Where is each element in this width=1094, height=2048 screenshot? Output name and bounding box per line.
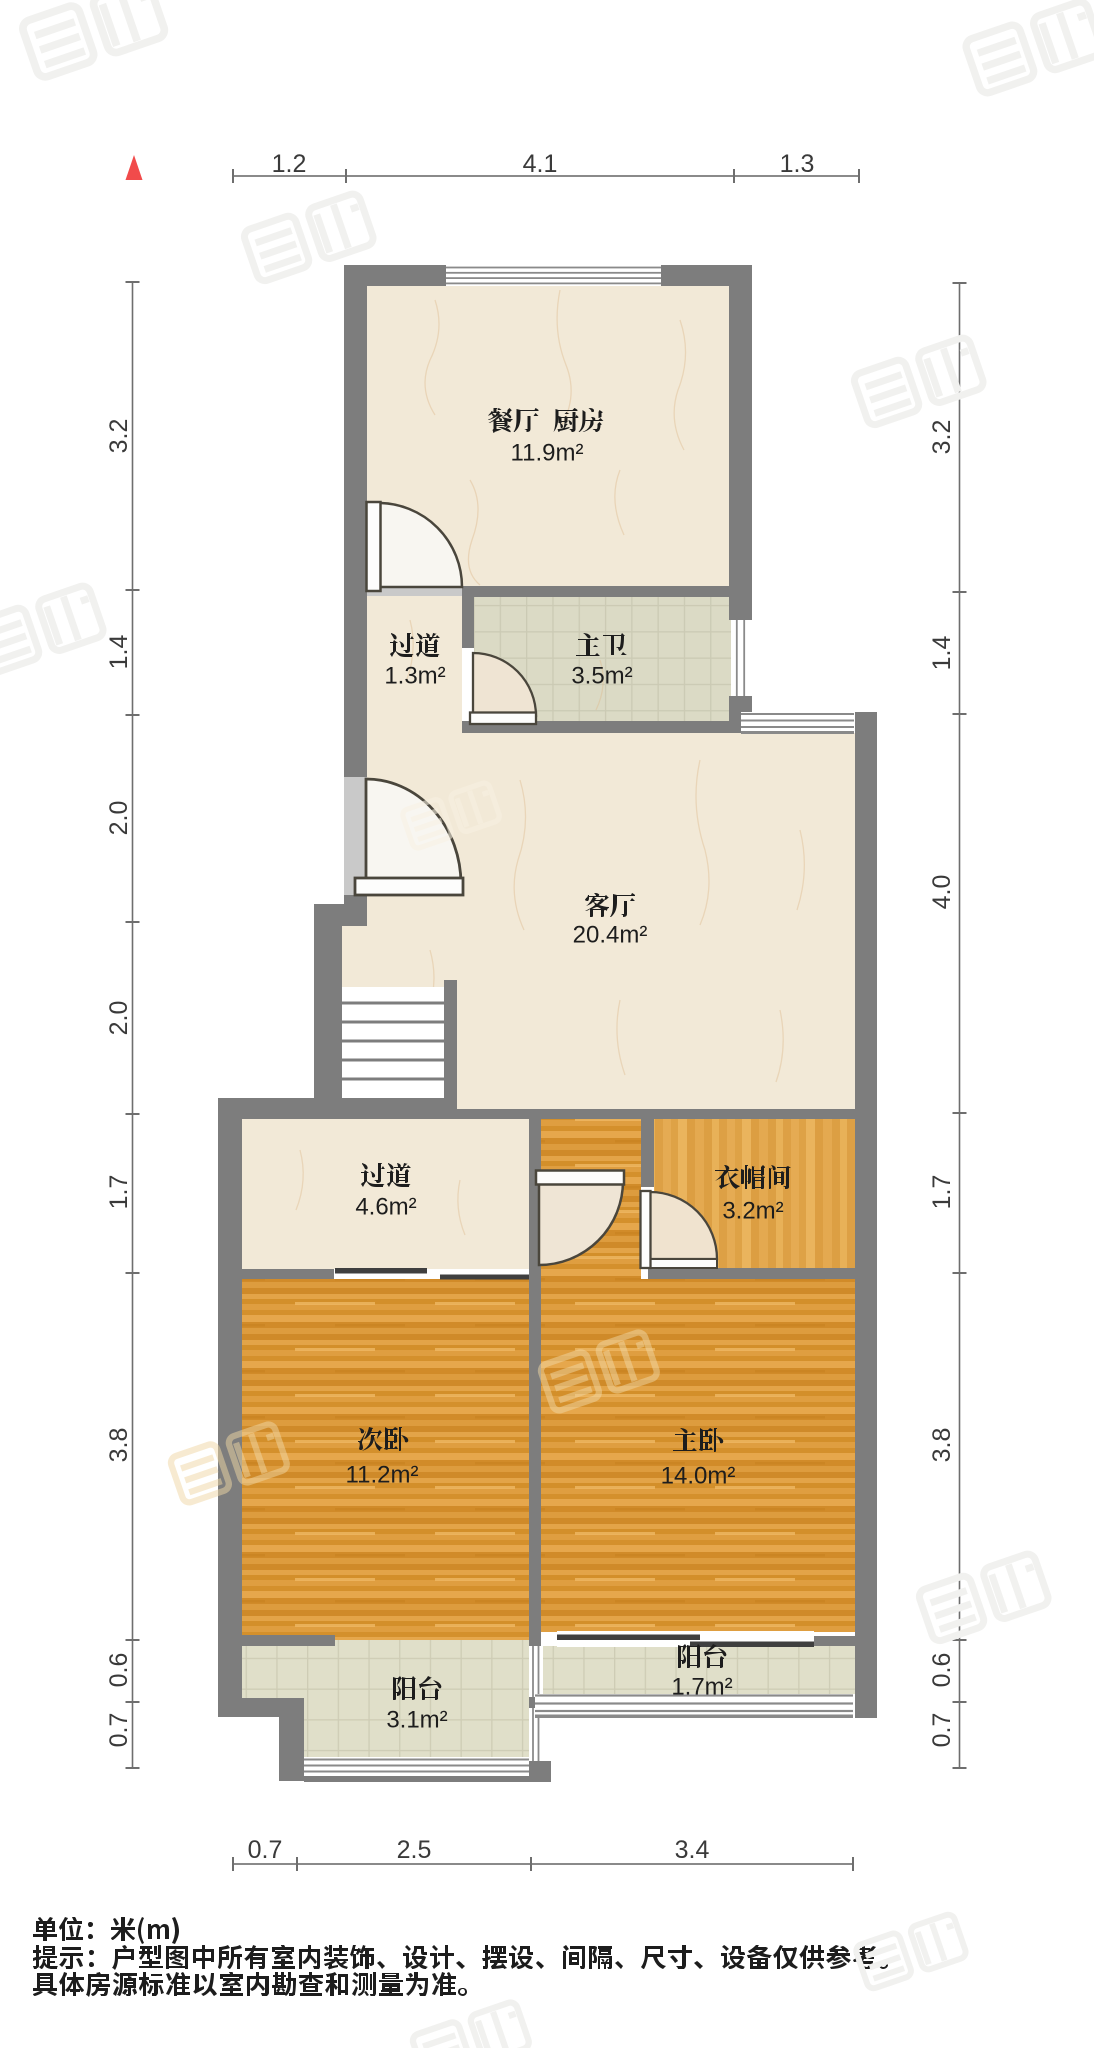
svg-text:0.7: 0.7: [248, 1836, 283, 1864]
svg-text:0.6: 0.6: [105, 1653, 133, 1688]
svg-text:3.2: 3.2: [928, 420, 956, 455]
svg-text:1.2: 1.2: [272, 150, 307, 178]
svg-text:1.4: 1.4: [928, 636, 956, 671]
svg-text:1.3m²: 1.3m²: [384, 663, 445, 690]
svg-text:0.7: 0.7: [928, 1713, 956, 1748]
svg-text:4.1: 4.1: [523, 150, 558, 178]
svg-text:1.7m²: 1.7m²: [671, 1674, 732, 1701]
svg-text:1.3: 1.3: [780, 150, 815, 178]
svg-text:3.1m²: 3.1m²: [386, 1707, 447, 1734]
svg-text:3.5m²: 3.5m²: [571, 663, 632, 690]
svg-text:1.7: 1.7: [928, 1175, 956, 1210]
svg-text:4.6m²: 4.6m²: [355, 1194, 416, 1221]
svg-text:1.7: 1.7: [105, 1175, 133, 1210]
svg-text:11.2m²: 11.2m²: [346, 1462, 419, 1489]
svg-text:2.5: 2.5: [397, 1836, 432, 1864]
svg-text:2.0: 2.0: [105, 1001, 133, 1036]
svg-text:3.8: 3.8: [105, 1428, 133, 1463]
svg-text:3.8: 3.8: [928, 1428, 956, 1463]
svg-text:0.6: 0.6: [928, 1653, 956, 1688]
svg-text:3.2m²: 3.2m²: [722, 1198, 783, 1225]
svg-text:3.4: 3.4: [675, 1836, 710, 1864]
svg-text:3.2: 3.2: [105, 419, 133, 454]
svg-text:11.9m²: 11.9m²: [511, 440, 584, 467]
svg-text:4.0: 4.0: [928, 875, 956, 910]
svg-text:20.4m²: 20.4m²: [573, 922, 648, 949]
svg-text:0.7: 0.7: [105, 1713, 133, 1748]
svg-text:1.4: 1.4: [105, 635, 133, 670]
svg-text:2.0: 2.0: [105, 801, 133, 836]
svg-text:14.0m²: 14.0m²: [661, 1463, 736, 1490]
